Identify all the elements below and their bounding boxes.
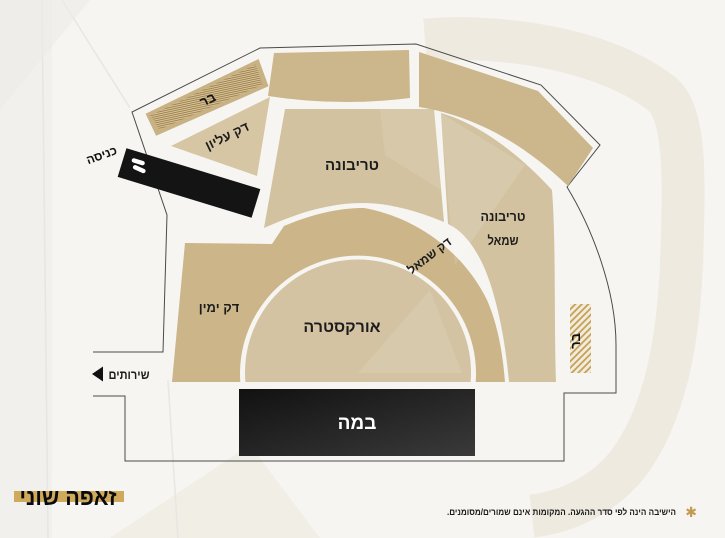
svg-text:טריבונה: טריבונה [325,157,379,174]
svg-text:שירותים: שירותים [109,368,150,382]
svg-text:הישיבה הינה לפי סדר ההגעה. המק: הישיבה הינה לפי סדר ההגעה. המקומות אינם … [447,507,676,517]
svg-text:דק ימין: דק ימין [199,300,240,315]
svg-text:טריבונה: טריבונה [481,209,526,224]
svg-text:✱: ✱ [685,504,697,520]
svg-text:אורקסטרה: אורקסטרה [303,319,380,336]
svg-text:זאפה שוני: זאפה שוני [20,484,118,510]
svg-text:בר: בר [568,333,583,349]
svg-text:במה: במה [338,413,377,434]
svg-text:שמאל: שמאל [488,233,519,248]
